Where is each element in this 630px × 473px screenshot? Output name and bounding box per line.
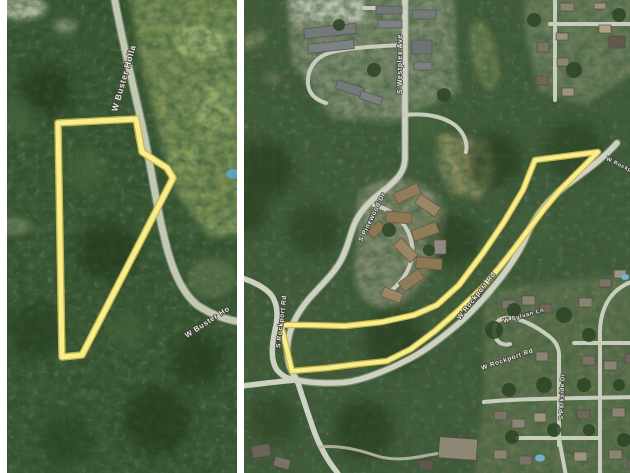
pool	[621, 274, 629, 280]
right-map-panel: S Westplex Ave S Pinewood Dr S Rockport …	[244, 0, 630, 473]
aerial-map-collage: W Buster Holla W Buster Ho	[0, 0, 630, 473]
road-label-westplex: S Westplex Ave	[397, 34, 404, 94]
pool	[535, 455, 545, 462]
left-map-panel: W Buster Holla W Buster Ho	[7, 0, 237, 473]
